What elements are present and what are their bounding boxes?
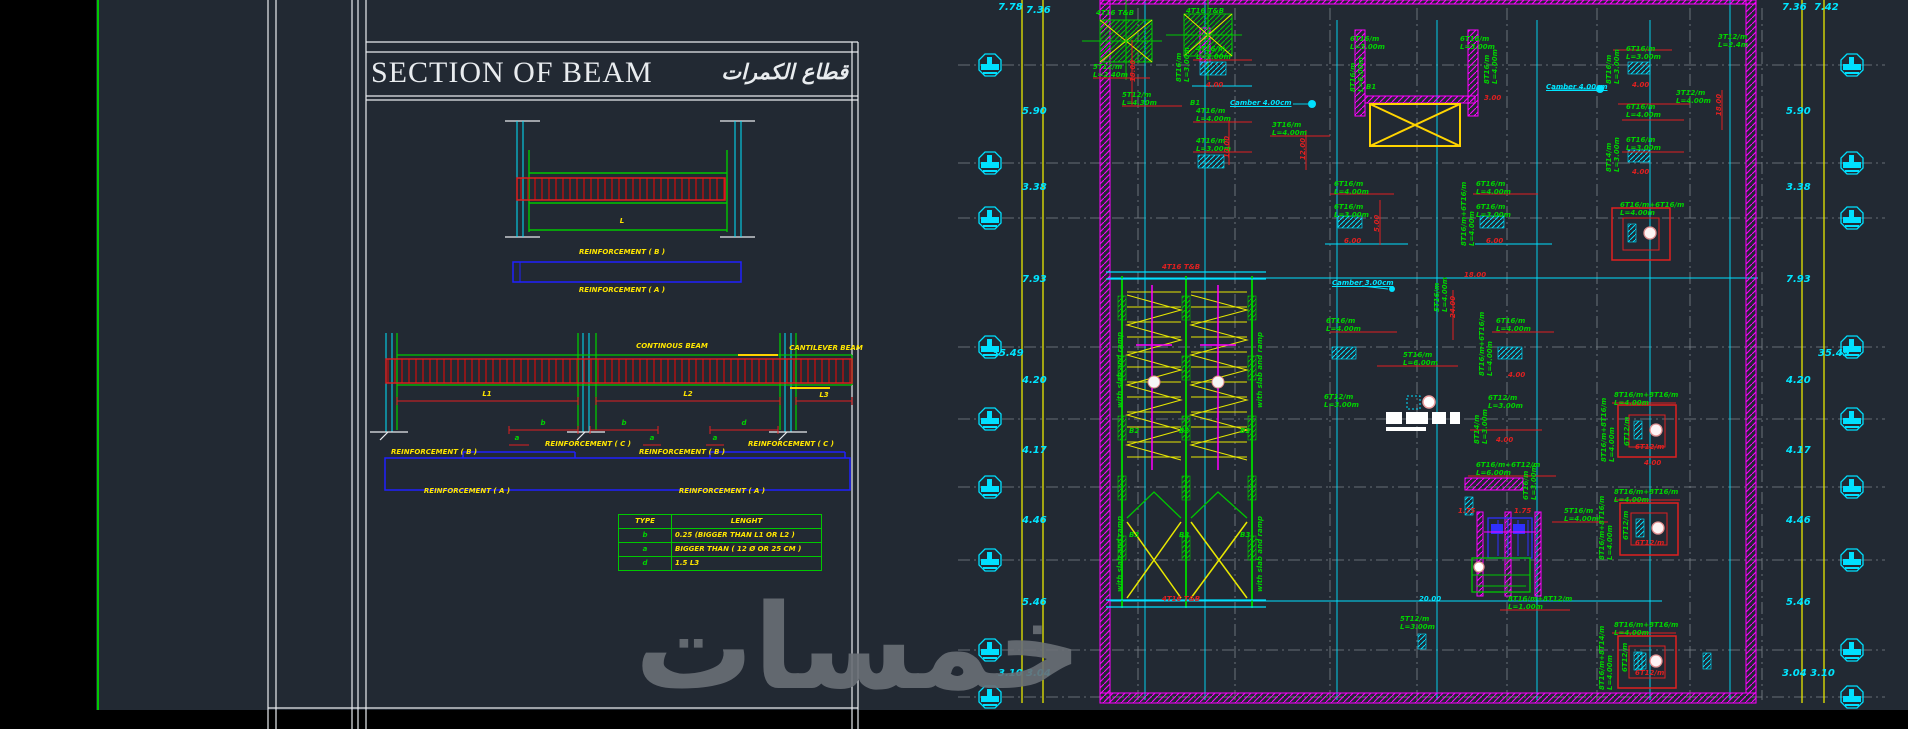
- level-marker-icon: [977, 547, 1003, 573]
- cad-label: a: [650, 435, 655, 443]
- cad-canvas: SECTION OF BEAM قطاع الكمرات LREINFORCEM…: [0, 0, 1908, 729]
- type-cell: d: [619, 557, 672, 571]
- cad-label: CANTILEVER BEAM: [789, 345, 863, 353]
- level-marker-icon: [1839, 205, 1865, 231]
- level-marker-icon: [1839, 334, 1865, 360]
- cad-label: L2: [683, 391, 692, 399]
- level-marker-icon: [1839, 547, 1865, 573]
- level-marker-icon: [977, 205, 1003, 231]
- table-header: LENGHT: [672, 515, 822, 529]
- cad-label: L3: [819, 392, 828, 400]
- cad-label: d: [741, 420, 746, 428]
- cad-label: b: [621, 420, 626, 428]
- level-marker-icon: [1839, 150, 1865, 176]
- cad-label: REINFORCEMENT ( B ): [579, 249, 665, 257]
- cad-label: a: [713, 435, 718, 443]
- level-marker-icon: [977, 52, 1003, 78]
- cad-label: CONTINOUS BEAM: [636, 343, 708, 351]
- table-row: d1.5 L3: [619, 557, 822, 571]
- cad-label: REINFORCEMENT ( C ): [545, 441, 631, 449]
- length-cell: 0.25 (BIGGER THAN L1 OR L2 ): [672, 529, 822, 543]
- table-row: aBIGGER THAN ( 12 Ø OR 25 CM ): [619, 543, 822, 557]
- cad-label: REINFORCEMENT ( B ): [391, 449, 477, 457]
- level-marker-icon: [1839, 406, 1865, 432]
- type-cell: a: [619, 543, 672, 557]
- table-header: TYPE: [619, 515, 672, 529]
- cad-label: b: [540, 420, 545, 428]
- type-cell: b: [619, 529, 672, 543]
- length-cell: 1.5 L3: [672, 557, 822, 571]
- beam-type-length-table: TYPELENGHT b0.25 (BIGGER THAN L1 OR L2 )…: [618, 514, 822, 571]
- level-marker-icon: [977, 150, 1003, 176]
- level-marker-icon: [1839, 637, 1865, 663]
- cad-label: REINFORCEMENT ( A ): [424, 488, 510, 496]
- cad-label: REINFORCEMENT ( C ): [748, 441, 834, 449]
- level-marker-icon: [1839, 52, 1865, 78]
- level-marker-icon: [977, 406, 1003, 432]
- table-row: b0.25 (BIGGER THAN L1 OR L2 ): [619, 529, 822, 543]
- cad-label: a: [515, 435, 520, 443]
- level-marker-icon: [977, 334, 1003, 360]
- level-marker-icon: [1839, 684, 1865, 710]
- cad-label: L1: [482, 391, 491, 399]
- cad-label: REINFORCEMENT ( B ): [639, 449, 725, 457]
- level-marker-icon: [1839, 474, 1865, 500]
- watermark-text: خمسات: [652, 588, 1082, 706]
- length-cell: BIGGER THAN ( 12 Ø OR 25 CM ): [672, 543, 822, 557]
- cad-label: REINFORCEMENT ( A ): [579, 287, 665, 295]
- level-marker-icon: [977, 474, 1003, 500]
- cad-label: L: [620, 218, 624, 226]
- cad-label: REINFORCEMENT ( A ): [679, 488, 765, 496]
